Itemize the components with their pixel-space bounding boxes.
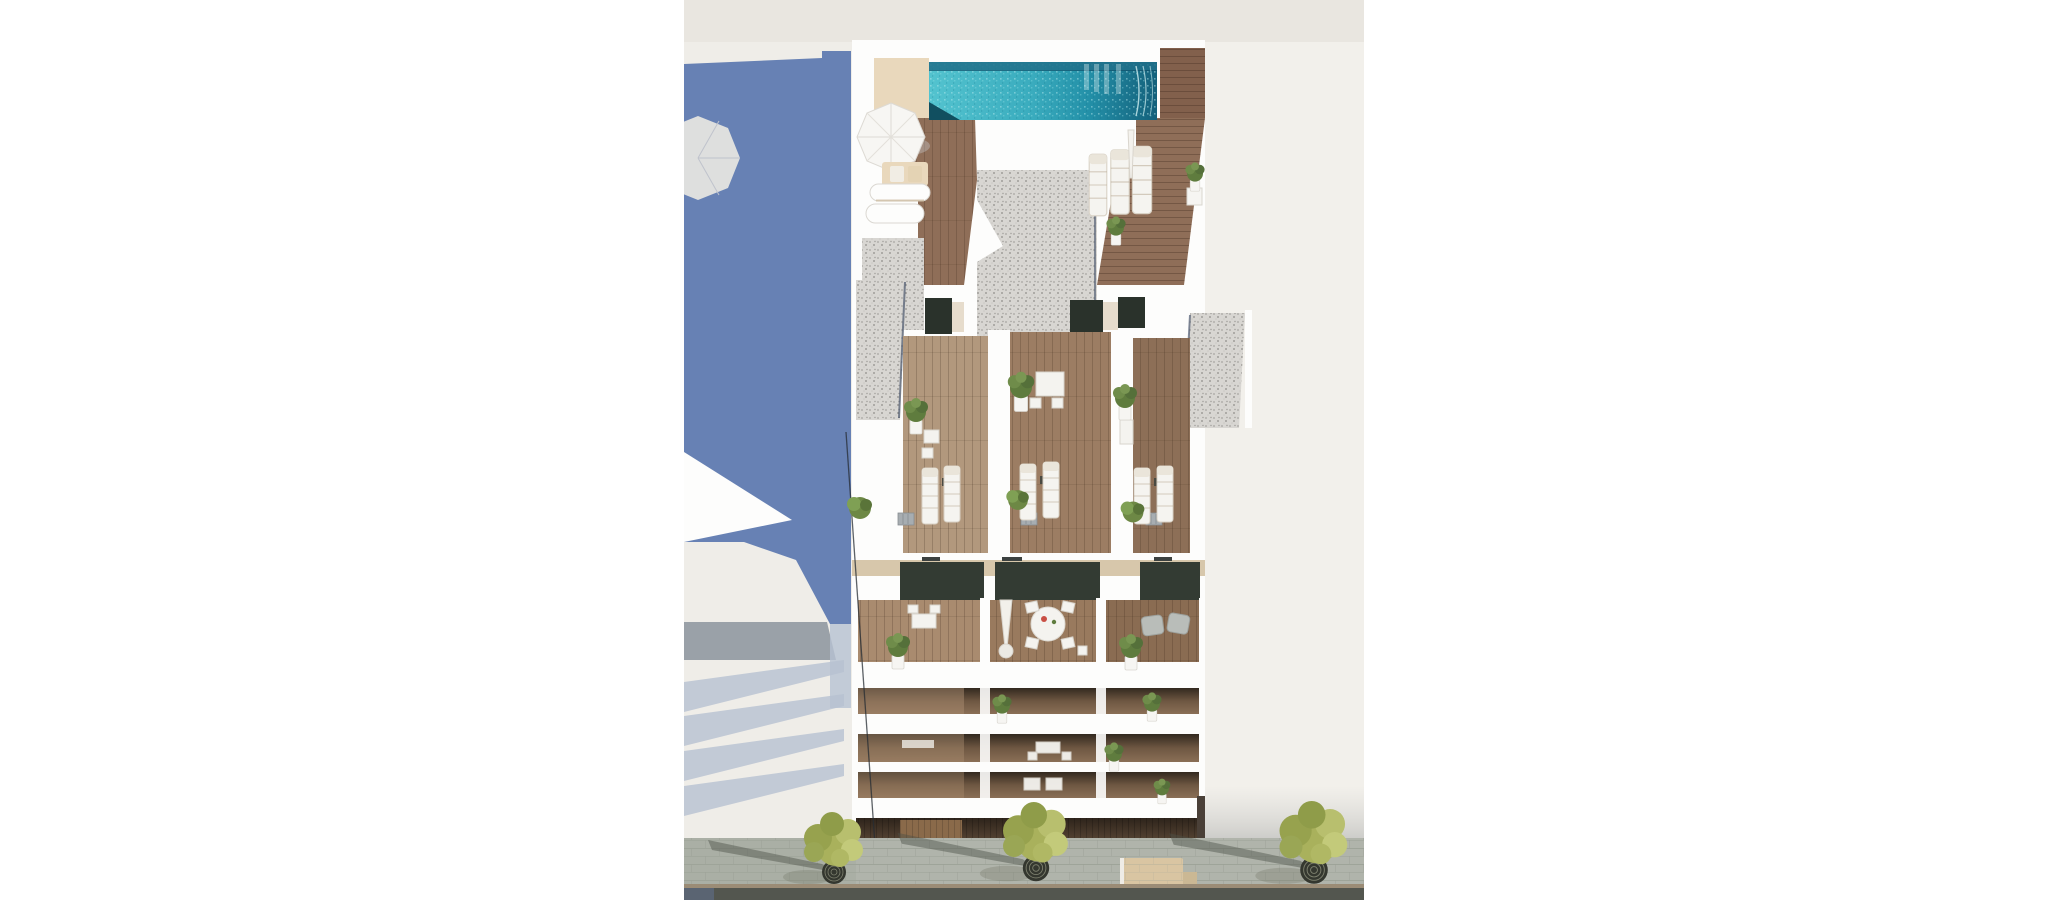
- curb: [684, 884, 1364, 888]
- right-neighbor-roof: [1205, 0, 1364, 900]
- sun-lounger: [922, 468, 938, 524]
- balcony-slab-1: [852, 662, 1205, 688]
- road: [684, 888, 1364, 900]
- door-left: [925, 298, 952, 334]
- ac-unit: [898, 513, 914, 525]
- gravel-attic-right: [1184, 313, 1245, 428]
- main-building: [852, 40, 1252, 843]
- divider-wall-1: [988, 330, 1010, 555]
- chair-right: [1120, 420, 1133, 444]
- roof-lounge-area: [882, 162, 928, 186]
- sun-lounger: [1111, 150, 1129, 214]
- sun-lounger: [1157, 466, 1173, 522]
- terrace-post-2: [1096, 598, 1106, 662]
- architectural-render-image: [684, 0, 1364, 900]
- gravel-attic-left: [856, 280, 906, 420]
- sun-lounger: [1043, 462, 1059, 518]
- sun-lounger: [1132, 146, 1151, 213]
- pool-far-edge: [929, 62, 1157, 70]
- neighbor-roof-slab: [684, 622, 836, 660]
- render-scene: [684, 0, 1364, 900]
- terrace-post-1: [980, 598, 990, 662]
- top-background-band: [684, 0, 1364, 42]
- balcony-rows: [852, 662, 1205, 818]
- glass-doors-center: [995, 562, 1100, 606]
- sun-lounger: [1089, 154, 1107, 216]
- screenshot-canvas: [0, 0, 2048, 900]
- glass-doors-right: [1140, 562, 1200, 606]
- door-right: [1118, 297, 1145, 328]
- sun-lounger: [944, 466, 960, 522]
- road-shadow-left: [684, 888, 714, 900]
- door-center: [1070, 300, 1103, 334]
- roof-loungers-group: [1089, 146, 1151, 215]
- rooftop-pool: [929, 62, 1157, 120]
- building-corner-shadow: [1197, 796, 1205, 843]
- balcony-slab-3: [852, 762, 1205, 772]
- glass-doors-left: [900, 562, 984, 606]
